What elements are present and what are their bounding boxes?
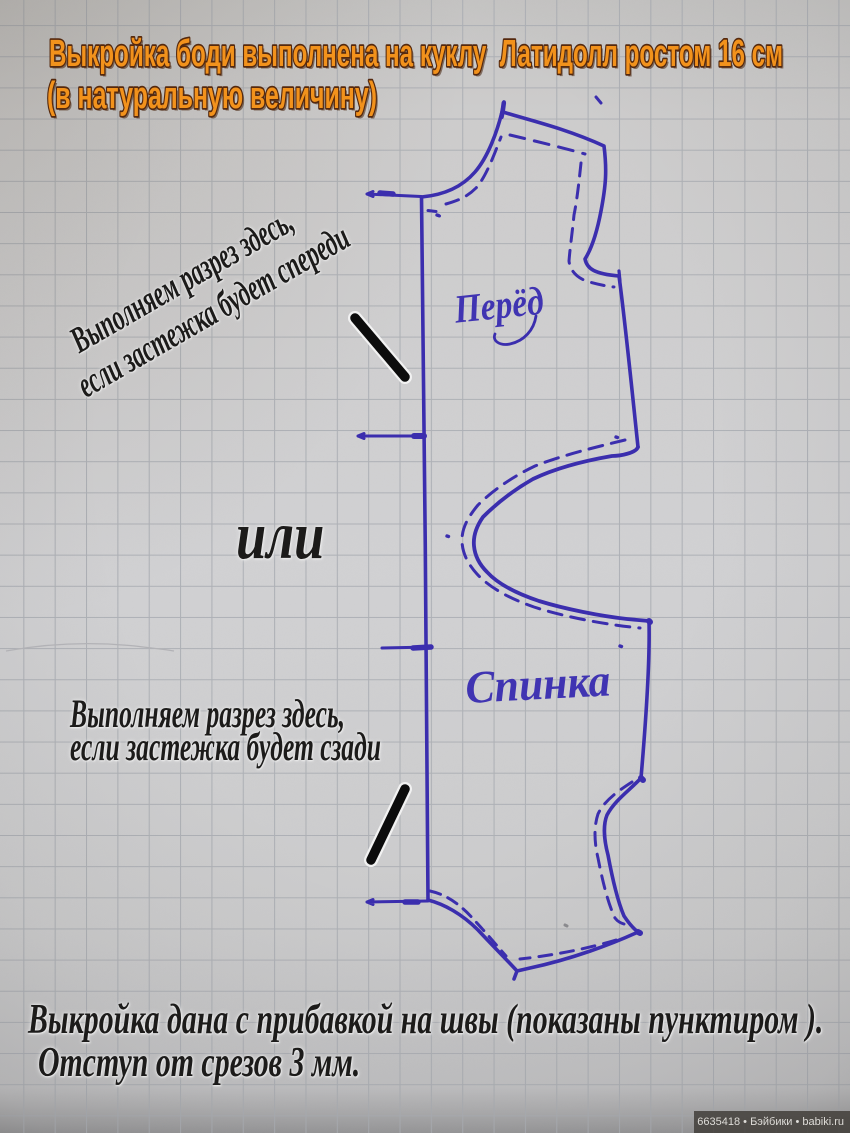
svg-text:Выкройка боди выполнена на кук: Выкройка боди выполнена на куклу Латидол…	[49, 33, 783, 75]
svg-text:(в натуральную величину): (в натуральную величину)	[47, 75, 377, 117]
